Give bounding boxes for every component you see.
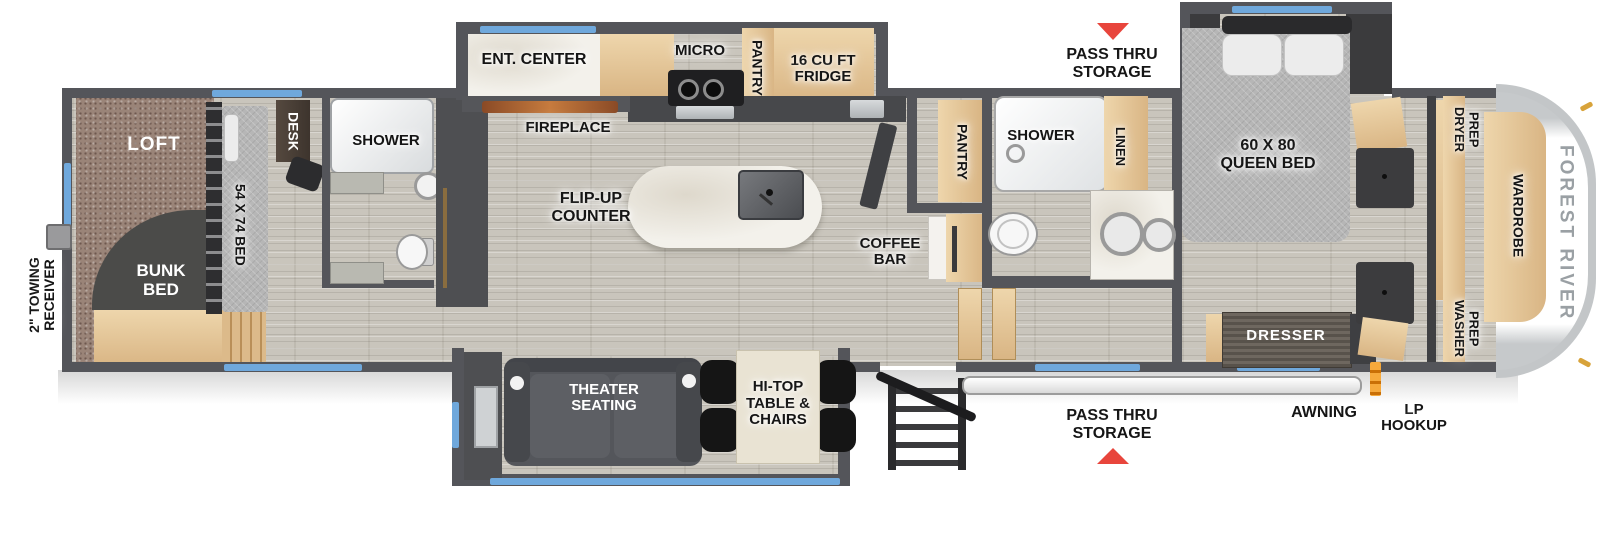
bunk-storage-platform xyxy=(94,310,222,366)
micro-label: MICRO xyxy=(668,42,732,60)
dryer-prep-label: DRYER PREP xyxy=(1444,100,1488,160)
awning-label: AWNING xyxy=(1286,402,1362,424)
bunk-room-door xyxy=(443,188,447,288)
queen-headboard xyxy=(1222,16,1352,34)
burner-right xyxy=(703,79,724,100)
bunk-bath-wall-left xyxy=(322,96,330,288)
kitchen-counter xyxy=(600,34,674,96)
coffee-bar-label: COFFEE BAR xyxy=(854,234,926,270)
bunk-bed-pillow xyxy=(224,114,239,162)
entry-step-4 xyxy=(896,442,958,448)
floorplan-canvas: LOFT BUNK BED 54 X 74 BED DESK SHOWER EN… xyxy=(0,0,1600,559)
pass-thru-top-arrow-icon xyxy=(1097,23,1129,40)
bunk-toilet-bowl xyxy=(396,234,428,270)
bunk-stair-slats xyxy=(222,310,266,362)
pantry-nook-wall-right xyxy=(982,95,992,213)
bath-pantry-label: PANTRY xyxy=(946,116,978,188)
window-bedroom-slide xyxy=(1232,6,1332,13)
bath-toilet-seat xyxy=(997,219,1029,249)
hi-top-chair-1 xyxy=(700,360,740,404)
desk-label: DESK xyxy=(279,102,307,160)
bunk-bath-vanity-lower xyxy=(330,262,384,284)
theater-cupholder-left xyxy=(510,376,524,390)
cap-pin-top xyxy=(1580,101,1594,112)
brand-label: FOREST RIVER xyxy=(1548,122,1582,344)
queen-pillow-right xyxy=(1284,34,1344,76)
pantry-nook-wall-bottom xyxy=(907,203,992,213)
theater-sofa-back xyxy=(504,358,702,372)
bath-sink-second xyxy=(1142,218,1176,252)
bedroom-tv-cabinet-knob xyxy=(1382,174,1387,179)
island-sink-drain xyxy=(766,189,773,196)
hi-top-label: HI-TOP TABLE & CHAIRS xyxy=(740,377,816,431)
bedroom-front-door xyxy=(1436,100,1443,300)
washer-prep-label: WASHER PREP xyxy=(1444,296,1488,362)
entry-step-rail-left xyxy=(888,378,896,470)
ent-center-label: ENT. CENTER xyxy=(470,48,598,72)
wardrobe-label: WARDROBE xyxy=(1502,158,1534,274)
window-bunk-bottom xyxy=(224,364,362,371)
window-theater-bottom xyxy=(490,478,840,485)
kitchen-slide-wall-left xyxy=(456,22,468,100)
pass-thru-bottom-arrow-icon xyxy=(1097,448,1129,464)
kitchen-pantry-label: PANTRY xyxy=(742,34,772,102)
hi-top-chair-2 xyxy=(700,408,740,452)
fridge-label: 16 CU FT FRIDGE xyxy=(776,50,870,88)
queen-pillow-left xyxy=(1222,34,1282,76)
entry-step-3 xyxy=(896,424,958,430)
pass-thru-bottom-label: PASS THRU STORAGE xyxy=(1062,408,1162,442)
fireplace xyxy=(482,101,618,113)
window-kitchen-slide xyxy=(480,26,596,33)
bedroom-cabinet-right xyxy=(1346,14,1392,94)
window-theater-left xyxy=(452,402,459,448)
window-bunk-top xyxy=(212,90,302,97)
coffee-bar-trim xyxy=(952,226,957,272)
kitchen-sink-tray xyxy=(850,100,884,118)
theater-seating-label: THEATER SEATING xyxy=(556,378,652,418)
cap-pin-bottom xyxy=(1578,357,1592,368)
flip-up-counter-label: FLIP-UP COUNTER xyxy=(536,188,646,228)
hi-top-chair-4 xyxy=(816,408,856,452)
coffee-bar-cabinet-door xyxy=(928,216,948,280)
bedroom-step-cabinet-knob xyxy=(1382,290,1387,295)
fireplace-label: FIREPLACE xyxy=(518,118,618,138)
bunk-shower-label: SHOWER xyxy=(336,130,436,152)
entry-step-5 xyxy=(896,460,958,466)
bedroom-front-wall xyxy=(1427,96,1436,362)
pass-thru-top-label: PASS THRU STORAGE xyxy=(1062,46,1162,82)
lp-hookup-valve xyxy=(1370,362,1381,396)
dresser-label: DRESSER xyxy=(1236,324,1336,348)
pantry-nook-wall-left xyxy=(907,95,917,213)
loft-label: LOFT xyxy=(106,131,202,159)
bath-shower-label: SHOWER xyxy=(992,124,1090,148)
bedroom-corner-shelf-top xyxy=(1351,97,1407,153)
towing-receiver-label: 2" TOWING RECEIVER xyxy=(23,243,61,347)
burner-left xyxy=(678,79,699,100)
theater-end-window xyxy=(474,386,498,448)
bath-door-right xyxy=(992,288,1016,360)
window-hall-bottom xyxy=(1035,364,1140,371)
hi-top-chair-3 xyxy=(816,360,856,404)
bunk-bed-size-label: 54 X 74 BED xyxy=(226,172,254,278)
bath-shower-drain xyxy=(1006,144,1025,163)
awning-bar xyxy=(962,376,1362,395)
queen-bed-label: 60 X 80 QUEEN BED xyxy=(1212,136,1324,174)
linen-label: LINEN xyxy=(1106,118,1134,174)
bath-sink xyxy=(1100,212,1144,256)
lp-hookup-label: LP HOOKUP xyxy=(1375,400,1453,436)
bunk-bed-label: BUNK BED xyxy=(116,258,206,304)
oven-door xyxy=(676,106,734,119)
bath-door-left xyxy=(958,288,982,360)
wall-bottom-front xyxy=(1392,362,1506,372)
bedroom-corner-shelf-bottom xyxy=(1358,317,1409,361)
loft-ladder xyxy=(206,102,222,314)
bath-wall-inner-left xyxy=(982,203,992,288)
kitchen-slide-wall-right xyxy=(876,22,888,100)
bunk-bath-vanity-upper xyxy=(330,172,384,194)
theater-cupholder-right xyxy=(682,374,696,388)
dresser-side-panel xyxy=(1206,314,1222,362)
